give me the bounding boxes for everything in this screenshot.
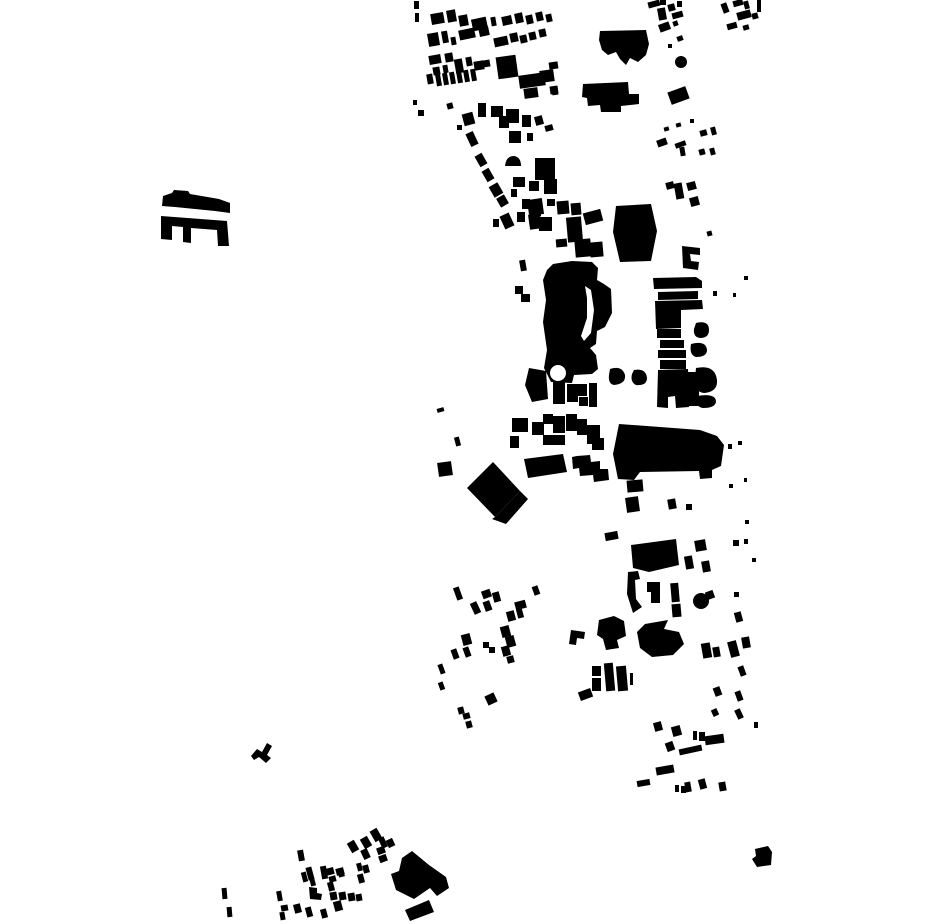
- building-footprint: [631, 539, 679, 572]
- building-footprint: [527, 133, 533, 141]
- building-footprint: [355, 894, 362, 902]
- building-footprint: [482, 168, 495, 182]
- building-footprint: [604, 531, 618, 541]
- building-footprint: [728, 444, 732, 449]
- building-footprint: [516, 608, 524, 618]
- building-footprint: [453, 586, 463, 600]
- building-footprint: [653, 277, 702, 289]
- building-footprint: [378, 854, 388, 863]
- building-footprint: [737, 665, 746, 676]
- building-footprint: [582, 82, 639, 112]
- building-footprint: [751, 12, 758, 19]
- building-footprint: [694, 539, 707, 552]
- building-footprint: [752, 558, 756, 562]
- building-footprint: [671, 604, 681, 618]
- building-footprint: [553, 416, 565, 433]
- building-footprint: [695, 367, 717, 393]
- building-footprint: [682, 246, 700, 270]
- building-footprint: [519, 260, 527, 272]
- building-footprint: [697, 395, 716, 408]
- building-footprint: [222, 888, 228, 899]
- building-footprint: [686, 181, 697, 191]
- building-footprint: [532, 585, 541, 596]
- building-footprint: [475, 153, 488, 167]
- building-footprint: [281, 904, 289, 911]
- building-footprint: [162, 190, 230, 213]
- building-footprint: [547, 199, 555, 206]
- building-footprint: [686, 504, 692, 510]
- building-footprint: [442, 65, 448, 74]
- building-footprint: [709, 147, 716, 155]
- building-footprint: [442, 73, 449, 86]
- building-footprint: [462, 112, 476, 126]
- building-footprint: [227, 907, 233, 917]
- building-footprint: [362, 864, 370, 873]
- building-footprint: [704, 734, 724, 746]
- building-footprint: [441, 31, 449, 44]
- building-footprint: [672, 20, 678, 26]
- building-footprint: [658, 21, 671, 32]
- building-footprint: [589, 383, 597, 407]
- building-footprint: [489, 182, 504, 197]
- building-footprint: [356, 862, 363, 871]
- building-footprint: [327, 881, 335, 891]
- building-footprint: [676, 35, 683, 42]
- building-footprint: [578, 688, 593, 701]
- building-footprint: [691, 343, 707, 357]
- building-footprint: [675, 56, 687, 68]
- building-footprint: [675, 785, 679, 792]
- building-footprint: [305, 906, 313, 917]
- building-footprint: [676, 122, 682, 127]
- building-footprint: [744, 539, 748, 544]
- building-footprint: [347, 892, 355, 901]
- building-footprint: [513, 177, 525, 187]
- building-footprint: [535, 158, 555, 180]
- building-footprint: [597, 616, 626, 650]
- building-footprint: [577, 419, 587, 435]
- building-footprint: [599, 30, 649, 65]
- building-footprint: [309, 877, 316, 887]
- building-footprint: [539, 69, 555, 83]
- building-footprint: [667, 3, 676, 12]
- building-footprint: [329, 891, 337, 900]
- building-footprint: [482, 59, 490, 67]
- building-footprint: [276, 891, 283, 902]
- building-footprint: [736, 9, 752, 20]
- building-footprint: [544, 179, 557, 194]
- building-footprint: [528, 213, 542, 230]
- building-footprint: [543, 414, 553, 424]
- building-footprint: [492, 591, 501, 602]
- building-footprint: [630, 673, 633, 685]
- building-footprint: [506, 610, 516, 622]
- building-footprint: [309, 887, 322, 900]
- building-footprint: [461, 633, 473, 646]
- building-footprint: [734, 592, 739, 597]
- building-footprint: [413, 100, 417, 105]
- building-footprint: [647, 582, 660, 592]
- building-footprint: [521, 294, 530, 302]
- building-footprint: [509, 32, 519, 42]
- building-footprint: [674, 182, 685, 199]
- building-footprint: [712, 646, 721, 657]
- building-footprint: [671, 725, 682, 737]
- building-footprint: [660, 360, 686, 369]
- building-footprint: [510, 436, 519, 448]
- building-footprint: [556, 201, 569, 215]
- building-footprint: [655, 764, 674, 775]
- building-footprint: [435, 74, 442, 87]
- building-footprint: [664, 126, 670, 131]
- building-footprint: [658, 291, 698, 300]
- building-footprint: [752, 846, 772, 867]
- building-footprint: [579, 397, 588, 406]
- building-footprint: [360, 836, 372, 850]
- building-footprint: [713, 686, 723, 697]
- building-footprint: [450, 648, 459, 659]
- building-footprint: [511, 189, 517, 197]
- building-footprint: [525, 368, 548, 402]
- building-footprint: [727, 640, 740, 658]
- building-footprint: [414, 1, 419, 9]
- building-footprint: [405, 900, 434, 921]
- building-footprint: [478, 103, 486, 117]
- building-footprint: [733, 540, 739, 546]
- building-footprint: [444, 52, 453, 62]
- building-footprint: [632, 370, 648, 385]
- building-footprint: [522, 115, 531, 127]
- building-footprint: [320, 908, 328, 918]
- building-footprint: [742, 24, 749, 30]
- building-footprint: [711, 708, 719, 717]
- building-footprint: [744, 478, 747, 482]
- building-footprint: [517, 212, 525, 222]
- building-footprint: [430, 12, 445, 25]
- building-footprint: [741, 636, 751, 648]
- building-footprint: [360, 848, 371, 860]
- building-footprint: [734, 708, 744, 720]
- building-footprint: [738, 441, 742, 445]
- building-footprint: [627, 571, 642, 613]
- building-footprint: [754, 722, 758, 728]
- building-footprint: [569, 630, 585, 645]
- building-footprint: [671, 11, 683, 20]
- building-footprint: [449, 72, 456, 85]
- building-footprint: [699, 732, 705, 741]
- building-footprint: [578, 384, 587, 396]
- building-footprint: [677, 1, 682, 7]
- building-footprint: [744, 276, 748, 280]
- building-footprint: [426, 74, 434, 85]
- building-footprint: [462, 646, 471, 657]
- building-footprint: [529, 181, 539, 191]
- building-footprint: [519, 34, 528, 43]
- building-footprint: [684, 555, 694, 569]
- building-footprint: [670, 583, 680, 603]
- building-footprint: [627, 479, 644, 492]
- building-footprint: [500, 213, 515, 230]
- building-footprint: [538, 28, 547, 37]
- building-footprint: [457, 706, 465, 714]
- building-footprint: [613, 204, 657, 262]
- building-footprint: [532, 422, 544, 435]
- building-footprint: [293, 903, 302, 914]
- building-footprint: [658, 350, 686, 358]
- building-footprint: [552, 88, 559, 96]
- building-footprint: [701, 560, 711, 572]
- building-footprint: [647, 0, 660, 8]
- building-footprint: [583, 209, 603, 225]
- building-footprint: [501, 15, 513, 26]
- building-footprint: [470, 601, 481, 615]
- building-footprint: [690, 119, 694, 123]
- building-footprint: [665, 181, 675, 190]
- building-footprint: [745, 520, 749, 524]
- building-footprint: [524, 454, 567, 478]
- building-footprint: [566, 414, 577, 431]
- building-footprint: [609, 368, 625, 385]
- building-footprint: [729, 484, 733, 488]
- building-footprint: [733, 293, 736, 297]
- building-footprint: [656, 138, 668, 148]
- building-footprint: [506, 109, 519, 123]
- building-footprint: [660, 0, 666, 5]
- building-footprint: [528, 31, 537, 40]
- building-footprint: [415, 13, 419, 22]
- building-footprint: [251, 743, 272, 763]
- building-footprint: [514, 600, 527, 611]
- building-footprint: [514, 12, 524, 23]
- building-footprint: [543, 435, 565, 445]
- building-footprint: [637, 620, 684, 657]
- building-footprint: [534, 115, 544, 126]
- building-footprint: [297, 850, 305, 862]
- figure-ground-map: [0, 0, 930, 924]
- building-footprint: [625, 496, 640, 513]
- building-footprint: [545, 13, 553, 22]
- building-footprint: [446, 9, 457, 22]
- building-footprint: [484, 692, 497, 705]
- building-footprint: [512, 418, 528, 432]
- building-footprint: [493, 36, 509, 48]
- building-footprint: [428, 54, 441, 65]
- building-footprint: [613, 424, 724, 480]
- building-footprint: [496, 55, 519, 80]
- building-footprint: [481, 589, 492, 600]
- building-footprint: [549, 61, 559, 69]
- courtyard-cutout: [550, 365, 566, 381]
- building-footprint: [161, 216, 229, 246]
- building-footprint: [391, 851, 449, 899]
- building-footprint: [653, 721, 663, 732]
- building-footprint: [657, 329, 681, 338]
- building-footprint: [734, 611, 743, 622]
- building-footprint: [515, 286, 523, 294]
- building-footprint: [483, 600, 493, 612]
- building-footprint: [637, 779, 651, 787]
- footprint-layer: [0, 0, 930, 924]
- building-footprint: [572, 455, 609, 482]
- building-footprint: [732, 0, 743, 7]
- building-footprint: [454, 437, 461, 447]
- building-footprint: [710, 126, 717, 135]
- building-footprint: [589, 241, 603, 257]
- building-footprint: [357, 873, 365, 883]
- building-footprint: [543, 261, 612, 383]
- building-footprint: [679, 745, 703, 756]
- building-footprint: [701, 642, 712, 658]
- building-footprint: [604, 663, 615, 692]
- building-footprint: [457, 125, 462, 130]
- building-footprint: [333, 900, 343, 912]
- building-footprint: [450, 37, 456, 46]
- building-footprint: [490, 17, 496, 27]
- building-footprint: [496, 194, 509, 207]
- building-footprint: [523, 87, 538, 99]
- building-footprint: [693, 731, 697, 740]
- building-footprint: [668, 44, 672, 48]
- building-footprint: [463, 70, 470, 83]
- building-footprint: [699, 129, 707, 137]
- building-footprint: [757, 0, 761, 12]
- building-footprint: [665, 741, 676, 752]
- building-footprint: [500, 625, 512, 638]
- building-footprint: [491, 106, 503, 117]
- building-footprint: [689, 196, 700, 207]
- building-footprint: [509, 131, 521, 143]
- building-footprint: [347, 840, 359, 854]
- building-footprint: [718, 781, 726, 791]
- building-footprint: [574, 238, 592, 257]
- building-footprint: [465, 57, 472, 67]
- building-footprint: [418, 110, 424, 116]
- building-footprint: [743, 0, 750, 9]
- building-footprint: [694, 322, 709, 338]
- building-footprint: [592, 666, 601, 676]
- building-footprint: [667, 498, 677, 509]
- building-footprint: [505, 156, 521, 166]
- building-footprint: [657, 369, 689, 408]
- building-footprint: [660, 340, 684, 348]
- building-footprint: [489, 647, 495, 653]
- building-footprint: [438, 681, 445, 690]
- building-footprint: [734, 690, 743, 701]
- building-footprint: [465, 720, 473, 728]
- building-footprint: [726, 22, 737, 30]
- building-footprint: [713, 291, 717, 296]
- building-footprint: [556, 239, 568, 248]
- building-footprint: [667, 86, 689, 105]
- building-footprint: [535, 11, 544, 21]
- building-footprint: [592, 438, 604, 450]
- building-footprint: [338, 891, 346, 900]
- building-footprint: [437, 461, 453, 477]
- building-footprint: [446, 102, 453, 109]
- building-footprint: [437, 407, 445, 413]
- building-footprint: [592, 678, 601, 691]
- building-footprint: [566, 216, 583, 242]
- building-footprint: [279, 912, 285, 921]
- building-footprint: [506, 655, 515, 664]
- building-footprint: [570, 203, 581, 216]
- building-footprint: [458, 27, 476, 40]
- building-footprint: [483, 642, 489, 648]
- building-footprint: [616, 666, 628, 692]
- building-footprint: [679, 147, 685, 157]
- building-footprint: [706, 230, 712, 236]
- building-footprint: [437, 663, 445, 674]
- building-footprint: [553, 382, 565, 404]
- building-footprint: [427, 32, 440, 47]
- building-footprint: [337, 868, 345, 877]
- building-footprint: [544, 124, 553, 132]
- building-footprint: [527, 198, 544, 216]
- building-footprint: [567, 384, 578, 402]
- building-footprint: [651, 592, 660, 603]
- building-footprint: [465, 131, 478, 147]
- building-footprint: [698, 778, 707, 789]
- building-footprint: [720, 2, 729, 13]
- building-footprint: [698, 148, 705, 155]
- building-footprint: [525, 14, 534, 24]
- building-footprint: [493, 219, 499, 227]
- building-footprint: [657, 7, 667, 20]
- building-footprint: [458, 14, 469, 26]
